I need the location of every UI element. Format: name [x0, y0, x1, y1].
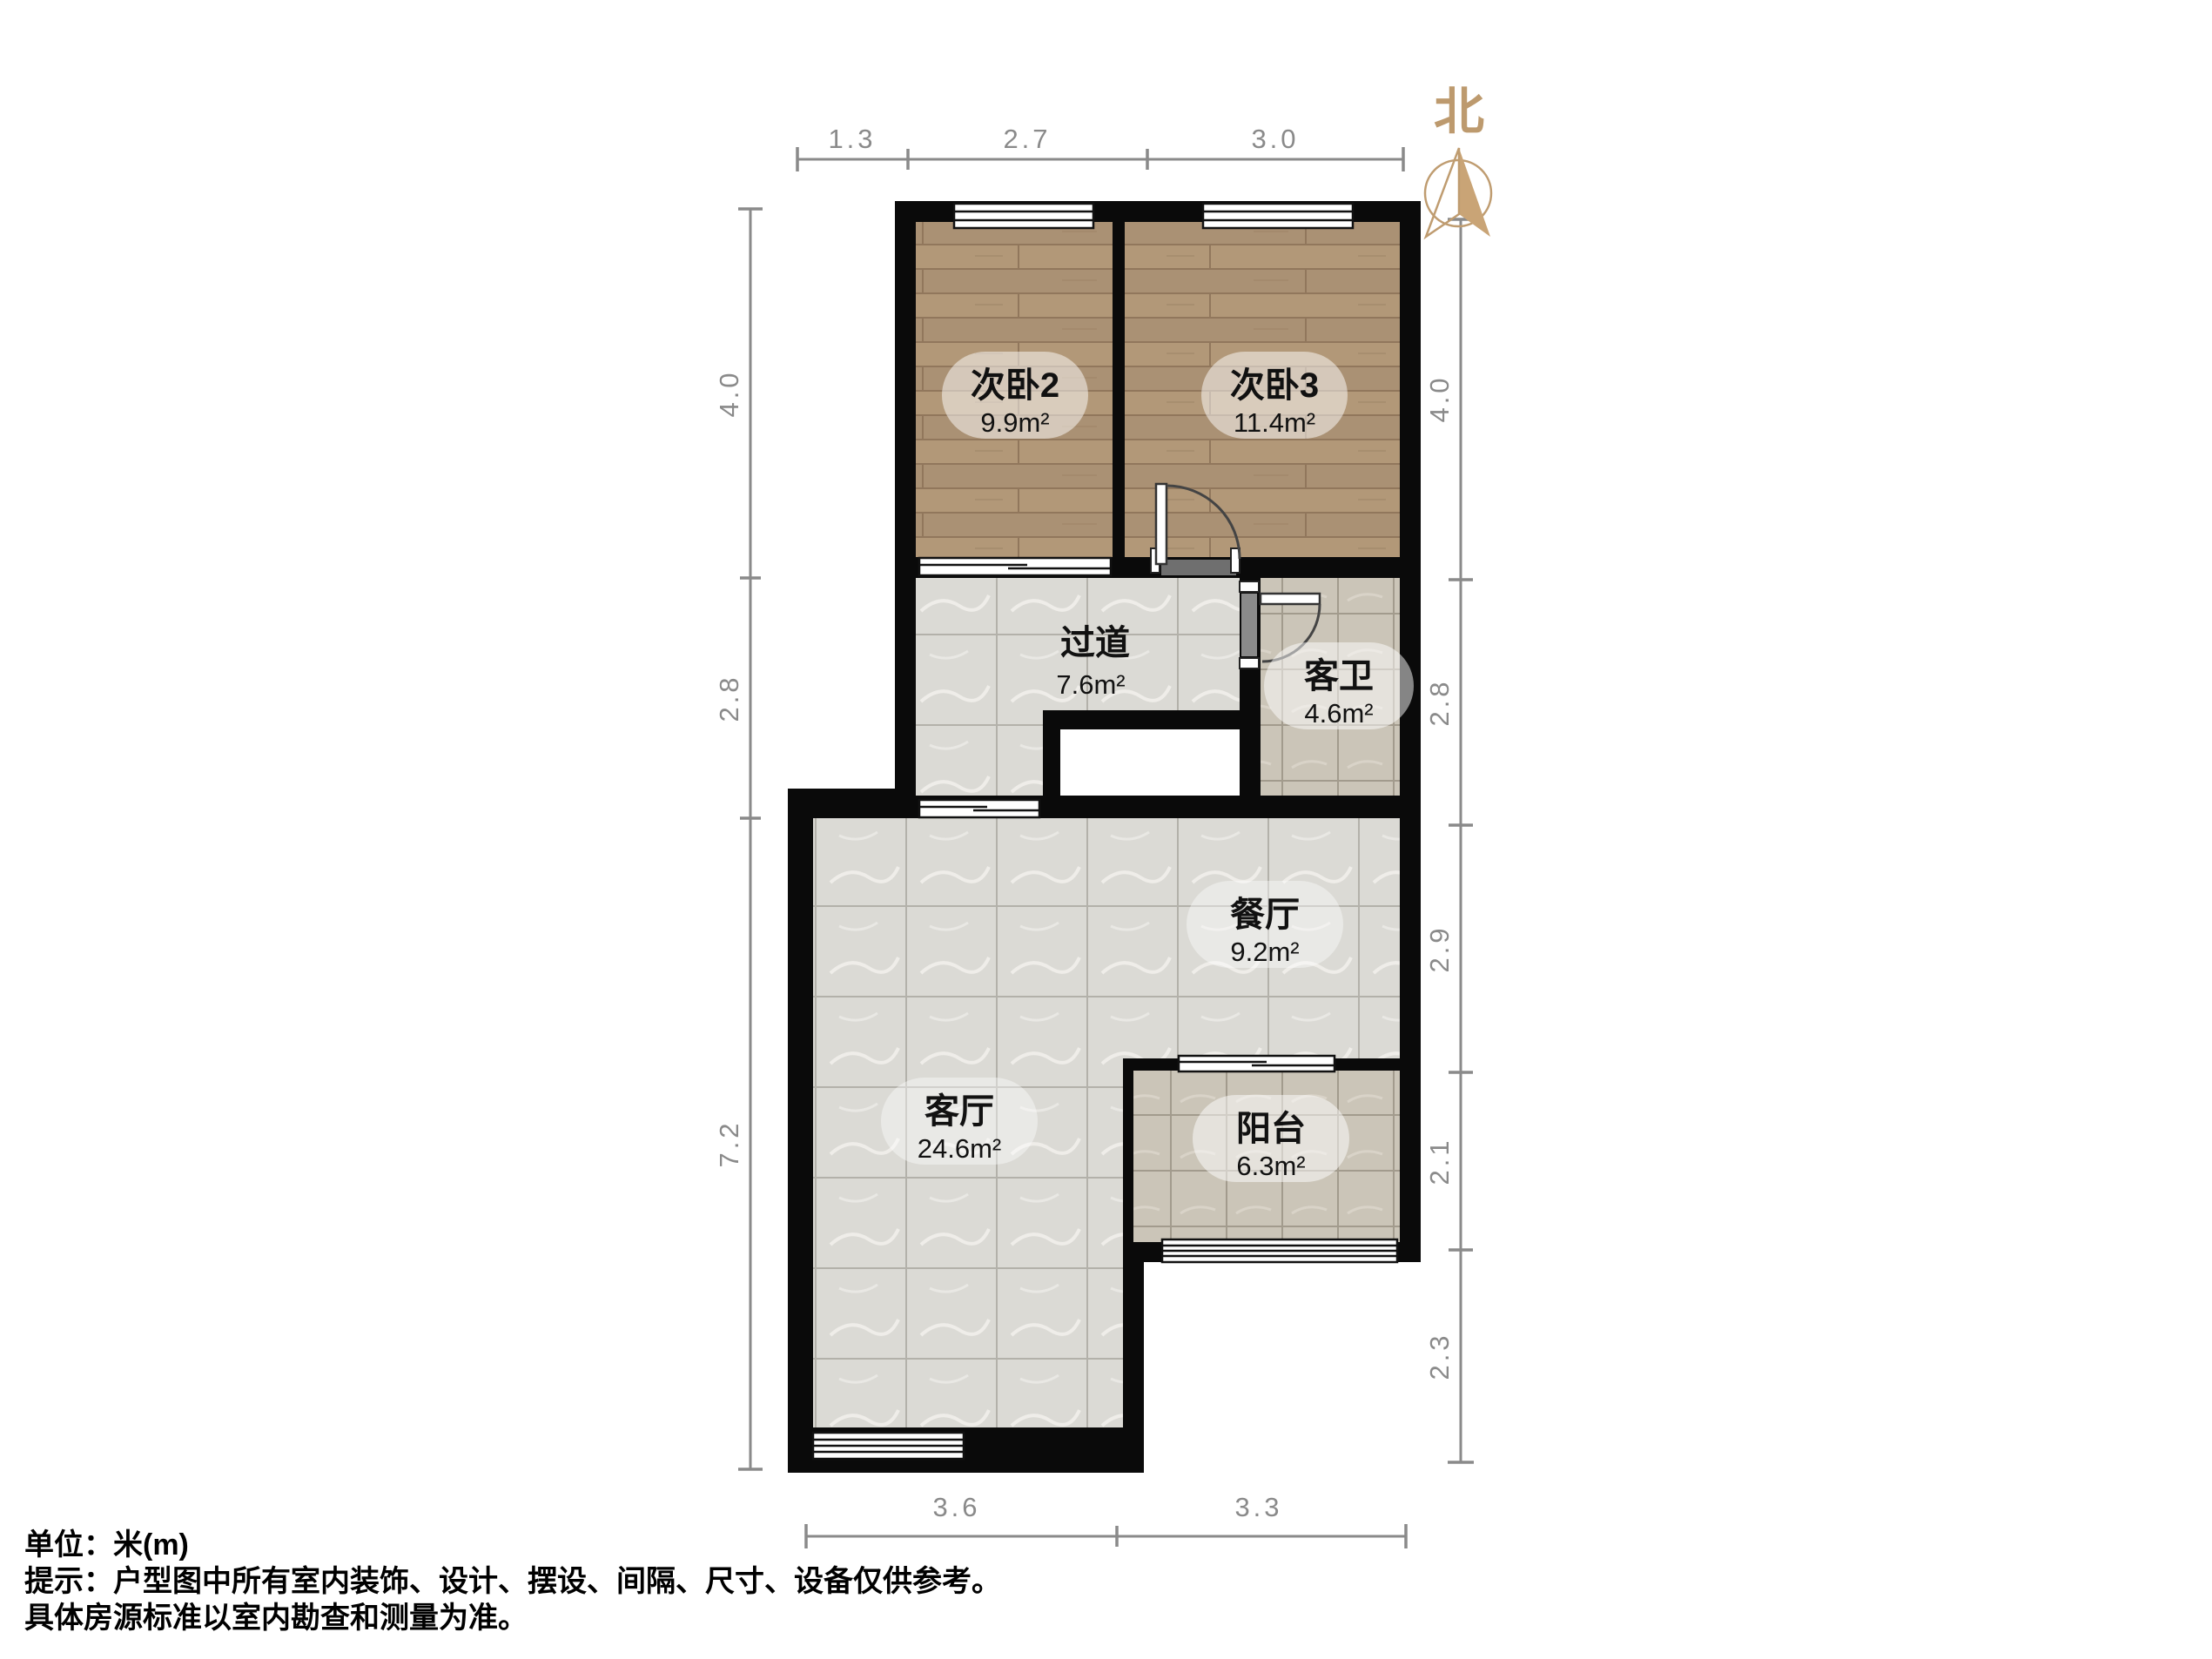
room-area: 7.6m²: [1056, 669, 1125, 700]
dim-top-3: 3.0: [1251, 124, 1299, 154]
sliding-door-hall-living: [919, 800, 1039, 817]
dim-right-4: 2.1: [1424, 1137, 1455, 1185]
window-bedroom3: [1203, 204, 1353, 228]
dimension-right: 4.0 2.8 2.9 2.1 2.3: [1424, 219, 1474, 1462]
dimension-left: 4.0 2.8 7.2: [714, 209, 763, 1469]
north-compass: 北: [1425, 84, 1491, 237]
room-name: 客卫: [1304, 657, 1374, 695]
sliding-door-bedroom2: [919, 558, 1111, 575]
note-disclaimer-2: 具体房源标准以室内勘查和测量为准。: [24, 1601, 528, 1635]
dim-left-3: 7.2: [714, 1119, 744, 1167]
footnotes: 单位：米(m) 提示：户型图中所有室内装饰、设计、摆设、间隔、尺寸、设备仅供参考…: [24, 1528, 1001, 1635]
dim-left-1: 4.0: [714, 369, 744, 417]
door-leaf: [1261, 594, 1320, 604]
window-living: [813, 1433, 964, 1459]
room-area: 24.6m²: [918, 1133, 1001, 1164]
dim-right-1: 4.0: [1424, 374, 1455, 422]
note-disclaimer-1: 提示：户型图中所有室内装饰、设计、摆设、间隔、尺寸、设备仅供参考。: [24, 1564, 1001, 1598]
dim-top-1: 1.3: [828, 124, 876, 154]
dim-bottom-1: 3.6: [932, 1492, 980, 1522]
north-label: 北: [1434, 84, 1484, 140]
room-name: 过道: [1060, 624, 1130, 662]
room-area: 9.9m²: [980, 407, 1049, 438]
room-label-dining: 餐厅 9.2m²: [1187, 881, 1343, 968]
dim-top-2: 2.7: [1003, 124, 1051, 154]
dimension-top: 1.3 2.7 3.0: [797, 124, 1403, 171]
room-label-bedroom2: 次卧2 9.9m²: [942, 352, 1088, 439]
void-opening: [1060, 729, 1240, 796]
room-label-bathroom: 客卫 4.6m²: [1264, 642, 1414, 729]
door-threshold: [1161, 560, 1236, 575]
door-threshold: [1241, 594, 1257, 656]
sliding-window-balcony: [1179, 1056, 1335, 1071]
room-name: 次卧2: [971, 366, 1059, 405]
dim-left-2: 2.8: [714, 674, 744, 722]
floorplan-canvas: 次卧2 9.9m² 次卧3 11.4m² 过道 7.6m² 客卫 4.6m² 餐…: [0, 0, 2212, 1659]
room-area: 4.6m²: [1304, 698, 1373, 729]
room-label-bedroom3: 次卧3 11.4m²: [1201, 352, 1348, 439]
room-label-living: 客厅 24.6m²: [881, 1078, 1038, 1165]
room-label-hallway: 过道 7.6m²: [1056, 624, 1130, 700]
dim-bottom-2: 3.3: [1234, 1492, 1282, 1522]
room-name: 阳台: [1236, 1110, 1306, 1148]
void-shaft: [1043, 710, 1261, 818]
room-name: 客厅: [924, 1092, 994, 1131]
door-leaf: [1156, 484, 1167, 564]
dim-right-3: 2.9: [1424, 924, 1455, 972]
room-area: 9.2m²: [1230, 937, 1299, 967]
room-label-balcony: 阳台 6.3m²: [1193, 1095, 1349, 1182]
room-name: 餐厅: [1230, 896, 1300, 934]
note-units: 单位：米(m): [24, 1528, 189, 1562]
dim-right-5: 2.3: [1424, 1332, 1455, 1380]
window-balcony: [1162, 1239, 1397, 1262]
room-area: 11.4m²: [1234, 407, 1315, 438]
dim-right-2: 2.8: [1424, 678, 1455, 726]
room-name: 次卧3: [1230, 366, 1319, 405]
window-bedroom2: [954, 204, 1093, 228]
room-area: 6.3m²: [1236, 1151, 1305, 1181]
dimension-bottom: 3.6 3.3: [806, 1492, 1406, 1548]
